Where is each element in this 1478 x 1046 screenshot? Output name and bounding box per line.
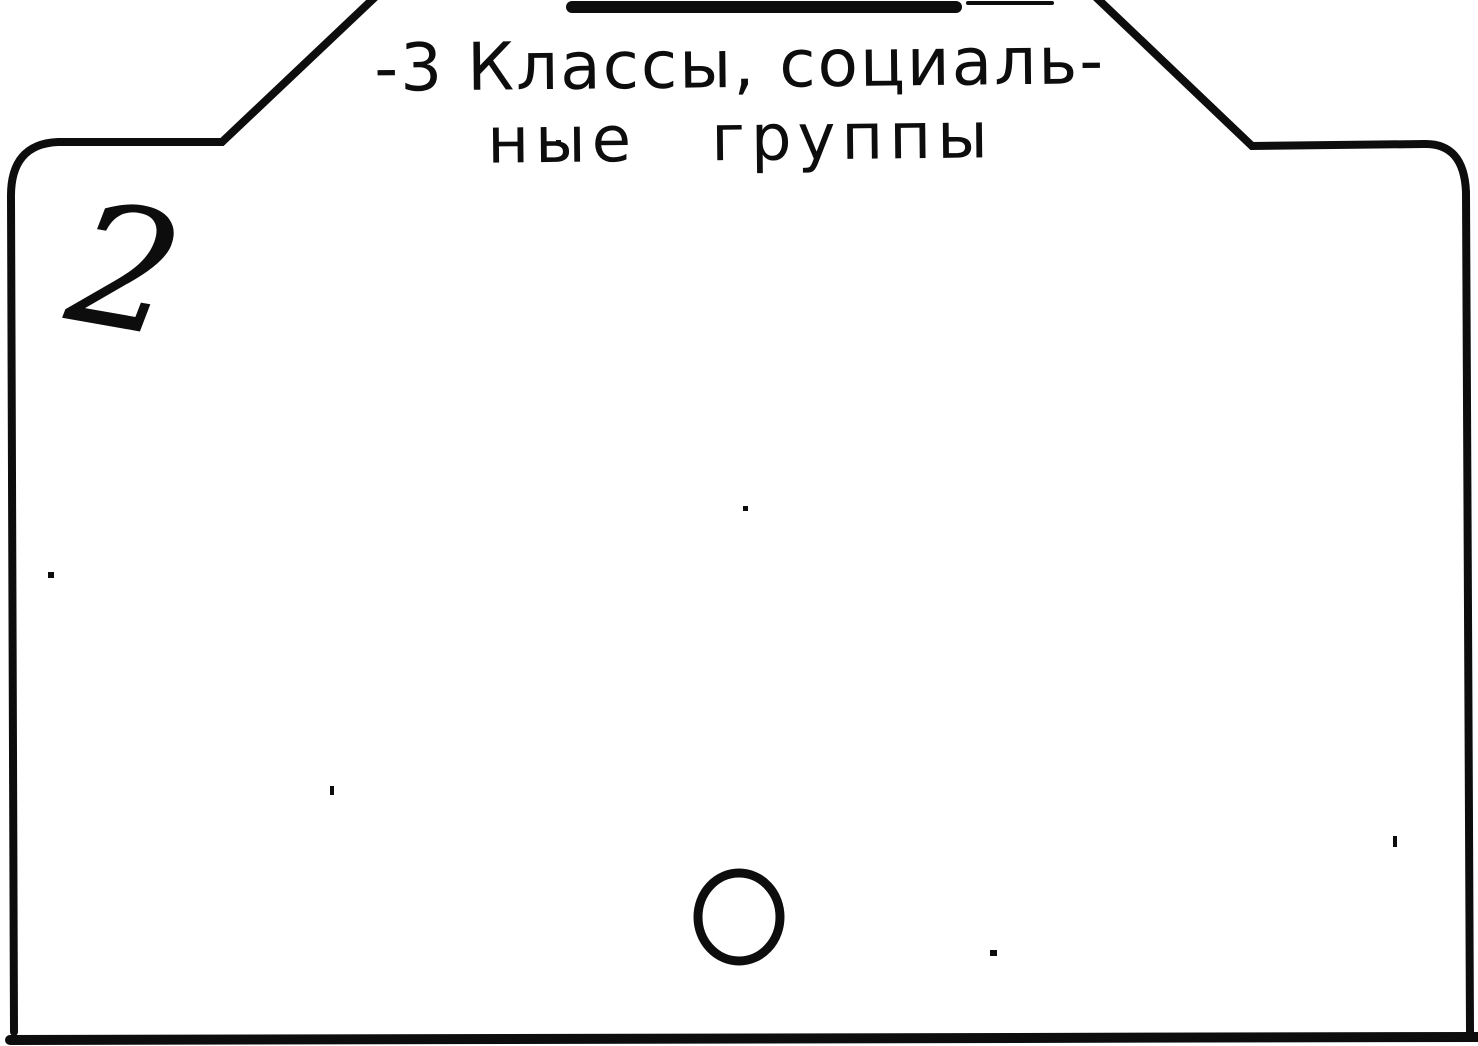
scanned-index-card: -3 Классы, социаль- ные группы 2 <box>0 0 1478 1046</box>
ink-speck <box>48 572 54 578</box>
ink-speck <box>743 506 748 511</box>
punch-hole-circle <box>698 873 780 961</box>
ink-speck <box>990 950 997 956</box>
ink-speck <box>1393 836 1397 847</box>
card-bottom-edge <box>10 1037 1478 1040</box>
ink-speck <box>330 786 334 795</box>
tab-heading-line2: ные группы <box>1 94 1478 183</box>
ink-specks <box>48 140 1397 956</box>
